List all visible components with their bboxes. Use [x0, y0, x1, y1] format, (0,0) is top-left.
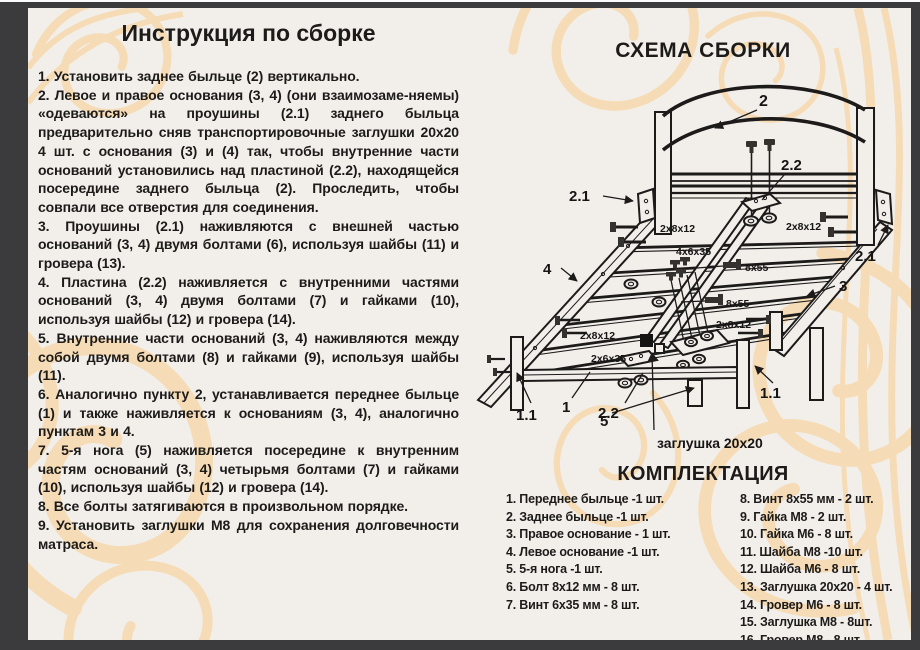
schema-title: СХЕМА СБОРКИ	[483, 39, 911, 63]
left-lug	[638, 189, 655, 223]
instruction-step: 1. Установить заднее быльце (2) вертикал…	[38, 67, 459, 86]
right-lug	[876, 190, 892, 224]
label-hw-top-right: 2x8x12	[786, 221, 821, 233]
label-hw-mid-right: 2x8x12	[716, 319, 751, 331]
label-part-1-1-right: 1.1	[760, 385, 781, 402]
transport-plug-square	[640, 334, 653, 347]
fifth-leg	[688, 380, 702, 406]
bolt-icon	[764, 139, 775, 192]
label-hw-beam: 2x6x35	[591, 353, 626, 365]
instruction-steps: 1. Установить заднее быльце (2) вертикал…	[38, 67, 459, 553]
parts-list-item: 13. Заглушка 20х20 - 4 шт.	[740, 579, 892, 597]
parts-list-title: КОМПЛЕКТАЦИЯ	[483, 463, 911, 486]
bolt-icon	[487, 355, 511, 376]
label-part-5: 5	[600, 413, 608, 430]
parts-list-item: 6. Болт 8х12 мм - 8 шт.	[506, 579, 670, 597]
parts-list-item: 9. Гайка М8 - 2 шт.	[740, 509, 892, 527]
instruction-step: 2. Левое и правое основания (3, 4) (они …	[38, 86, 459, 217]
parts-list-item: 3. Правое основание - 1 шт.	[506, 526, 670, 544]
instruction-step: 5. Внутренние части оснований (3, 4) наж…	[38, 329, 459, 385]
lug-bolts-right	[820, 212, 856, 237]
instruction-step: 6. Аналогично пункту 2, устанавливается …	[38, 385, 459, 441]
parts-list-item: 16. Гровер М8 - 8 шт.	[740, 632, 892, 640]
parts-list-column-1: 1. Переднее быльце -1 шт. 2. Заднее быль…	[506, 491, 670, 614]
frame-highlight-strip	[0, 0, 920, 2]
label-hw-mid-left: 2x8x12	[580, 330, 615, 342]
label-part-2: 2	[759, 93, 768, 110]
label-part-3: 3	[839, 278, 847, 295]
parts-list-item: 8. Винт 8х55 мм - 2 шт.	[740, 491, 892, 509]
label-part-4: 4	[543, 261, 552, 278]
instruction-step: 8. Все болты затягиваются в произвольном…	[38, 497, 459, 516]
label-part-2-2-top: 2.2	[781, 157, 802, 174]
parts-list-item: 2. Заднее быльце -1 шт.	[506, 509, 670, 527]
label-part-2-1-right: 2.1	[855, 248, 876, 265]
instruction-step: 7. 5-я нога (5) наживляется посередине к…	[38, 441, 459, 497]
instructions-panel: Инструкция по сборке 1. Установить задне…	[38, 20, 459, 553]
bolt-icon	[746, 141, 757, 198]
leaflet-page: Инструкция по сборке 1. Установить задне…	[28, 8, 911, 640]
instruction-step: 3. Проушины (2.1) наживляются с внешней …	[38, 217, 459, 273]
parts-list-item: 14. Гровер М6 - 8 шт.	[740, 597, 892, 615]
parts-list-item: 7. Винт 6х35 мм - 8 шт.	[506, 597, 670, 615]
parts-list-item: 15. Заглушка М8 - 8шт.	[740, 614, 892, 632]
label-part-1: 1	[562, 399, 570, 416]
parts-list-item: 12. Шайба М6 - 8 шт.	[740, 561, 892, 579]
label-hw-center: 4x6x35	[676, 246, 711, 258]
parts-list-item: 4. Левое основание -1 шт.	[506, 544, 670, 562]
parts-list-item: 10. Гайка М6 - 8 шт.	[740, 526, 892, 544]
instruction-step: 4. Пластина (2.2) наживляется с внутренн…	[38, 273, 459, 329]
parts-list-item: 1. Переднее быльце -1 шт.	[506, 491, 670, 509]
plug-caption: заглушка 20х20	[657, 435, 763, 451]
label-hw-bolt-b: 8x55	[726, 298, 750, 310]
bed-assembly-diagram: 2 2.1 2.1 2.2 2.2 4 3 1 1.1 1.1 5 2x8x12…	[465, 72, 911, 472]
parts-list-column-2: 8. Винт 8х55 мм - 2 шт. 9. Гайка М8 - 2 …	[740, 491, 892, 640]
parts-list-item: 5. 5-я нога -1 шт.	[506, 561, 670, 579]
parts-list-item: 11. Шайба М8 -10 шт.	[740, 544, 892, 562]
instructions-title: Инструкция по сборке	[38, 20, 459, 47]
label-hw-bolt-a: 8x55	[745, 262, 769, 274]
label-part-2-1-left: 2.1	[569, 188, 590, 205]
label-part-1-1-left: 1.1	[516, 407, 537, 424]
instruction-step: 9. Установить заглушки М8 для сохранения…	[38, 516, 459, 553]
label-hw-top-left: 2x8x12	[660, 223, 695, 235]
